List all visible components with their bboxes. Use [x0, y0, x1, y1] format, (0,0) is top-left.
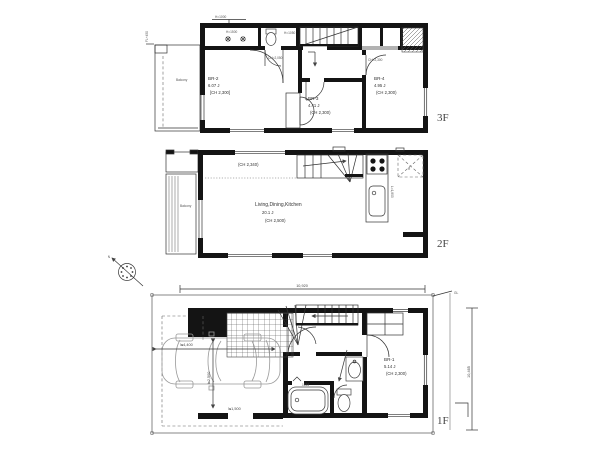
- toilet: [334, 385, 351, 412]
- floor-label-3f: 3F: [437, 112, 449, 124]
- svg-text:4.41 J: 4.41 J: [308, 103, 319, 108]
- room-br4-label: BR-4 4.95 J (CH 2,300): [374, 76, 397, 95]
- wheel: [244, 381, 261, 388]
- entry-roof-2f: [166, 150, 198, 172]
- br1-closet: [367, 313, 403, 335]
- folding-door: [293, 377, 301, 381]
- fridge-space: [398, 155, 423, 177]
- washbasin: [346, 357, 363, 381]
- north-label: N: [108, 255, 111, 259]
- porch-slab: [188, 308, 227, 337]
- floor-plan-sheet: Balcony FL+450: [0, 0, 600, 449]
- balcony-label-2f: Balcony: [180, 204, 192, 208]
- floor-label-2f: 2F: [437, 238, 449, 250]
- floor-plan-3f: Balcony FL+450: [145, 15, 449, 133]
- svg-text:(CH 2,300): (CH 2,300): [376, 90, 397, 95]
- svg-text:10,920: 10,920: [296, 284, 308, 288]
- balcony-label-3f: Balcony: [176, 78, 188, 82]
- compass-rose: N: [108, 255, 143, 286]
- balcony-2f: Balcony: [166, 174, 196, 254]
- svg-text:[CH 2,300]: [CH 2,300]: [210, 90, 230, 95]
- br1-door-arc: [367, 335, 389, 357]
- dim-top: 10,920: [180, 284, 425, 293]
- room-br3-label: BR-3 4.41 J (CH 2,300): [308, 96, 331, 115]
- bath-size-label: 1616: [302, 383, 309, 387]
- room-ldk-label: Living,Dining,Kitchen 20.1 J (CH 2,500): [255, 202, 302, 223]
- kitchen-2f: L=1,800 R: [366, 154, 423, 222]
- wic-note: H=1500: [226, 30, 237, 34]
- balcony-3f: Balcony: [155, 45, 200, 131]
- gl-note: GL: [454, 291, 458, 295]
- dim-right: GL 10,465: [433, 291, 478, 430]
- floor-label-1f: 1F: [437, 415, 449, 427]
- toilet-icon: [338, 395, 350, 412]
- stove-icon: [367, 155, 387, 174]
- toilet-icon: [266, 33, 276, 46]
- svg-text:(CH 2,300): (CH 2,300): [386, 371, 407, 376]
- svg-text:4.95 J: 4.95 J: [374, 83, 385, 88]
- sink-icon: [369, 186, 385, 216]
- room-br2-label: BR-2 6.07 J [CH 2,300]: [208, 76, 230, 95]
- svg-text:BR-2: BR-2: [208, 76, 219, 81]
- svg-text:BR-4: BR-4: [374, 76, 385, 81]
- counter-note: L=1,800: [390, 186, 394, 198]
- wheel: [176, 381, 193, 388]
- hanger-icon: [226, 37, 245, 41]
- svg-text:(CH 2,300): (CH 2,300): [310, 110, 331, 115]
- ch-note-2f: (CH 2,340): [238, 162, 259, 167]
- svg-text:5.14 J: 5.14 J: [384, 364, 395, 369]
- br4-ceiling-note: CH=2,300: [368, 58, 383, 62]
- svg-text:BR-3: BR-3: [308, 96, 319, 101]
- room-br1-label: BR-1 5.14 J (CH 2,300): [384, 357, 407, 376]
- fridge-label: R: [408, 167, 411, 171]
- garage-depth-dim: ≒2,500: [207, 372, 211, 385]
- garage-wall-stub: [198, 413, 228, 419]
- garage-width-dim: ≒4,400: [180, 343, 193, 347]
- stairs-2f: [297, 153, 363, 182]
- wc-note: H=1050: [284, 31, 295, 35]
- floor-plan-drawing: Balcony FL+450: [0, 0, 600, 449]
- walls-3f: [200, 23, 428, 133]
- roof-hatch-3f: [402, 28, 423, 52]
- h1000-note: H=1000: [212, 15, 246, 23]
- level-note-3f: FL+450: [145, 31, 149, 42]
- svg-text:H=1000: H=1000: [215, 15, 226, 19]
- svg-text:6.07 J: 6.07 J: [208, 83, 219, 88]
- svg-text:(CH 2,500): (CH 2,500): [265, 218, 286, 223]
- toilet-tank-icon: [337, 389, 351, 395]
- floor-plan-2f: Balcony (CH 2,340): [166, 147, 449, 258]
- svg-text:20.1 J: 20.1 J: [262, 210, 273, 215]
- svg-text:BR-1: BR-1: [384, 357, 395, 362]
- svg-text:Living,Dining,Kitchen: Living,Dining,Kitchen: [255, 202, 302, 208]
- wic-3f: H=1500: [226, 30, 245, 41]
- car-dim: ≒1,500: [228, 407, 241, 411]
- svg-text:10,465: 10,465: [467, 366, 471, 378]
- floor-plan-1f: 10,920 GL 10,465 N: [108, 255, 478, 435]
- garage-wall-stub: [253, 413, 283, 419]
